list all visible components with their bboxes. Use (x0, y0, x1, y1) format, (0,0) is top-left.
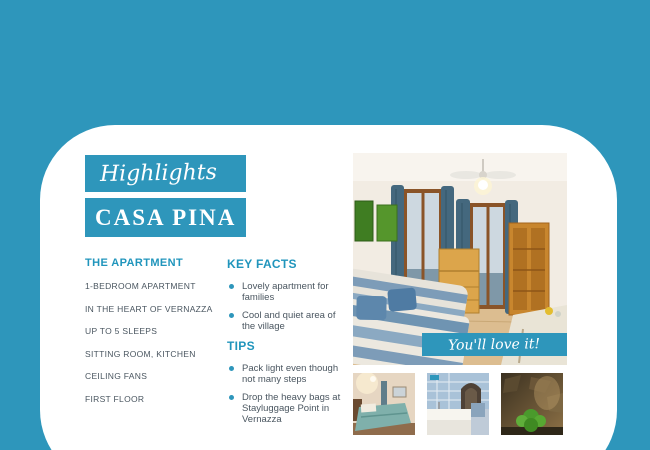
key-fact-text: Lovely apartment for families (242, 281, 345, 303)
apartment-section: THE APARTMENT 1-BEDROOM APARTMENT IN THE… (85, 257, 220, 416)
key-fact-item: Lovely apartment for families (227, 281, 345, 303)
page-title: CASA PINA (95, 205, 236, 231)
thumbnail-row (353, 373, 563, 435)
bullet-icon (229, 313, 234, 318)
apartment-item: FIRST FLOOR (85, 394, 220, 404)
main-photo: You'll love it! (353, 153, 567, 365)
apartment-item: UP TO 5 SLEEPS (85, 326, 220, 336)
highlights-band: Highlights (85, 155, 246, 192)
tip-text: Drop the heavy bags at Stayluggage Point… (242, 392, 345, 425)
photo-caption: You'll love it! (448, 336, 540, 354)
photo-caption-banner: You'll love it! (422, 333, 567, 356)
tip-item: Drop the heavy bags at Stayluggage Point… (227, 392, 345, 425)
key-fact-item: Cool and quiet area of the village (227, 310, 345, 332)
tips-heading: TIPS (227, 339, 345, 353)
key-facts-heading: KEY FACTS (227, 257, 345, 271)
tip-item: Pack light even though not many steps (227, 363, 345, 385)
flyer-page: Highlights CASA PINA THE APARTMENT 1-BED… (0, 0, 650, 450)
facts-section: KEY FACTS Lovely apartment for families … (227, 257, 345, 432)
apartment-item: CEILING FANS (85, 371, 220, 381)
bullet-icon (229, 284, 234, 289)
flyer-card: Highlights CASA PINA THE APARTMENT 1-BED… (40, 125, 617, 450)
key-fact-text: Cool and quiet area of the village (242, 310, 345, 332)
thumbnail-bedroom (353, 373, 415, 435)
title-band: CASA PINA (85, 198, 246, 237)
tip-text: Pack light even though not many steps (242, 363, 345, 385)
apartment-item: SITTING ROOM, KITCHEN (85, 349, 220, 359)
bullet-icon (229, 366, 234, 371)
thumbnail-bathroom (427, 373, 489, 435)
bullet-icon (229, 395, 234, 400)
apartment-heading: THE APARTMENT (85, 257, 220, 269)
highlights-label: Highlights (100, 160, 217, 187)
apartment-item: 1-BEDROOM APARTMENT (85, 281, 220, 291)
apartment-item: IN THE HEART OF VERNAZZA (85, 304, 220, 314)
thumbnail-grotto (501, 373, 563, 435)
